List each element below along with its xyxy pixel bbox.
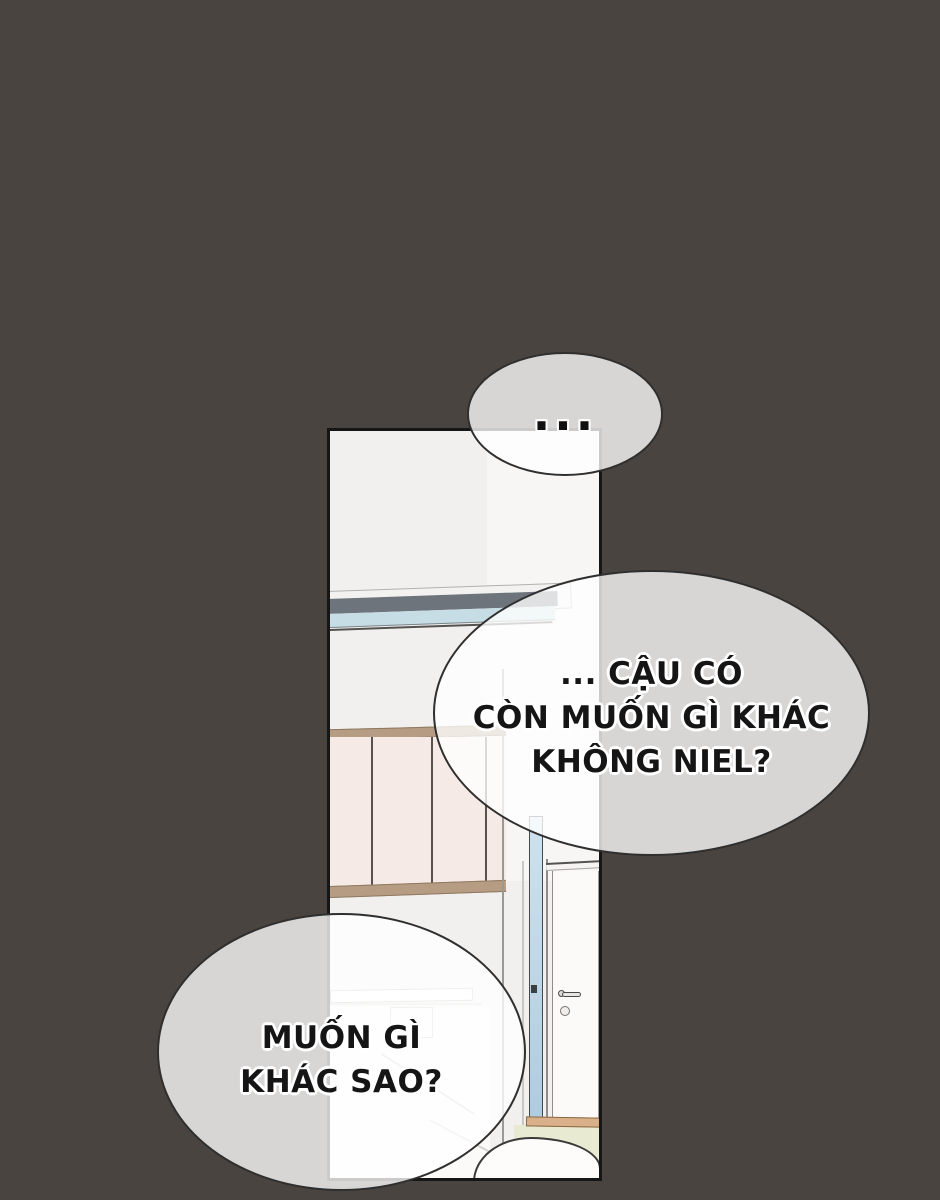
door-lock-knob <box>560 1006 570 1016</box>
threshold-trim <box>526 1116 600 1127</box>
speech-bubble-question: ... CẬU CÓ CÒN MUỐN GÌ KHÁC KHÔNG NIEL? <box>433 570 870 856</box>
door-blue-edge <box>529 816 543 1126</box>
speech-bubble-reply: MUỐN GÌ KHÁC SAO? <box>157 913 526 1191</box>
ellipsis-text: ... <box>533 410 597 418</box>
door-frame-line <box>546 859 548 1127</box>
door-latch <box>531 985 537 993</box>
door-handle <box>562 992 581 997</box>
reply-text: MUỐN GÌ KHÁC SAO? <box>240 1016 443 1104</box>
door <box>552 871 599 1121</box>
question-text: ... CẬU CÓ CÒN MUỐN GÌ KHÁC KHÔNG NIEL? <box>473 652 830 784</box>
wardrobe-door-divider <box>371 737 373 885</box>
wardrobe-door-divider <box>431 737 433 885</box>
comic-page: ... ... CẬU CÓ CÒN MUỐN GÌ KHÁC KHÔNG NI… <box>0 0 940 1200</box>
speech-bubble-ellipsis: ... <box>467 352 663 476</box>
